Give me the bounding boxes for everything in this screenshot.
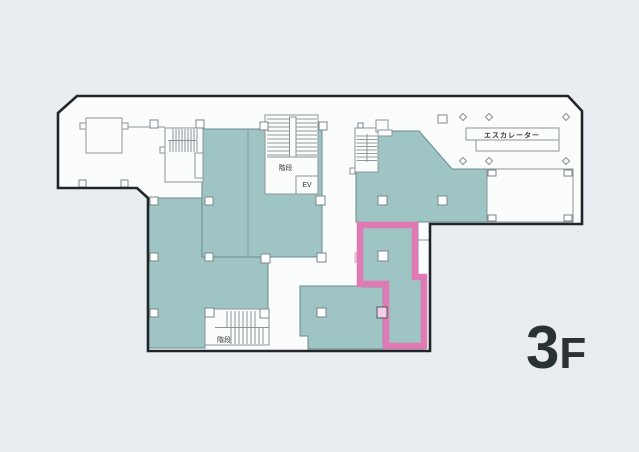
shaft-box [86,118,122,153]
escalator-label: エスカレーター [484,131,540,140]
right-wing-tab-2 [564,170,572,176]
right-wing-tab-3 [488,215,496,221]
stairs-upper-label: 階段 [279,163,293,172]
column [358,123,363,128]
column [261,254,270,263]
escalator-box-lower [476,140,559,151]
column [260,309,269,318]
column [317,308,326,317]
floor-plan-canvas: エスカレーター 階段 EV 階段 3F [0,0,639,452]
column [196,120,204,128]
column [378,251,388,261]
column [317,253,326,262]
floor-plan-page: エスカレーター 階段 EV 階段 3F [0,0,639,452]
highlighted-unit-column [377,307,387,318]
stairwell-right-tab-lower [350,168,355,174]
column [260,122,268,130]
stairs-upper-stringer [290,117,297,157]
column [150,197,158,205]
column [79,180,86,187]
column [205,253,213,261]
floor-suffix: F [559,329,586,378]
column [150,120,158,128]
service-strip [419,225,430,274]
elevator-label: EV [302,182,312,189]
right-wing-tab-1 [488,170,496,176]
column [121,180,128,187]
column [378,196,387,205]
right-wing-tab-4 [564,215,572,221]
stairwell-left-duct [195,153,203,178]
stairwell-left-tab [160,147,165,153]
column [205,308,214,317]
column [438,115,447,123]
column [438,196,447,205]
column [205,197,213,205]
shaft-tab-right [122,123,128,129]
floor-indicator: 3F [526,314,586,381]
tenant-area-lower-middle [300,286,383,349]
shaft-tab-left [80,123,86,129]
stairs-lower-label: 階段 [217,335,231,344]
column [319,122,327,130]
column [150,309,158,317]
stairwell-right-tab [378,130,392,136]
column [316,196,325,205]
right-wing-room [487,169,573,222]
column [150,253,158,261]
floor-number: 3 [526,314,559,381]
